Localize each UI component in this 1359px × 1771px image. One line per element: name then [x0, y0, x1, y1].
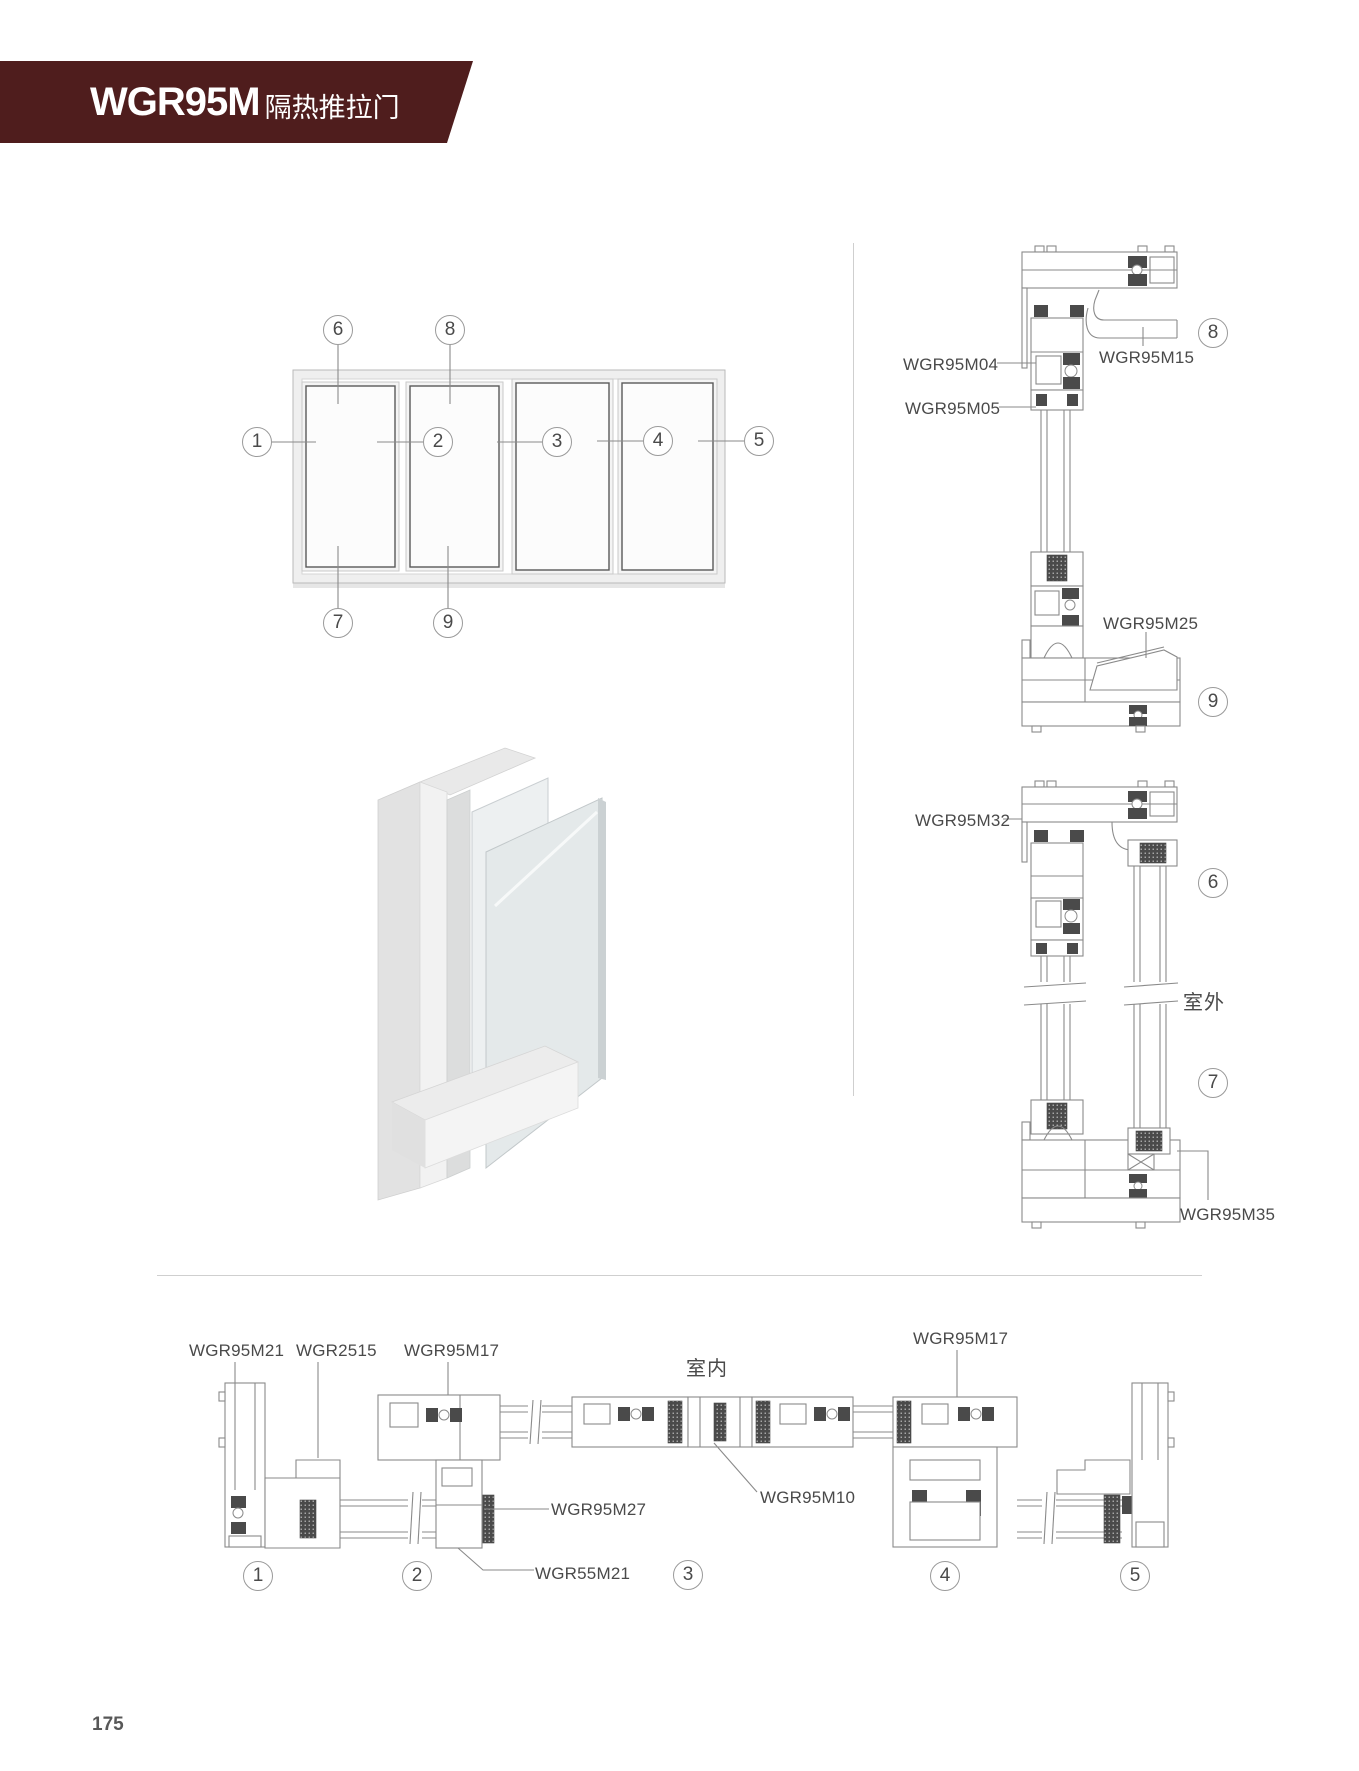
label-wgr2515: WGR2515 — [296, 1341, 377, 1361]
callout-bottom-2: 2 — [402, 1561, 432, 1591]
label-wgr95m21: WGR95M21 — [189, 1341, 284, 1361]
callout-6: 6 — [323, 315, 353, 345]
callout-1: 1 — [242, 427, 272, 457]
callout-section-9: 9 — [1198, 687, 1228, 717]
callout-5: 5 — [744, 426, 774, 456]
callout-2: 2 — [423, 427, 453, 457]
callout-bottom-4: 4 — [930, 1561, 960, 1591]
page-number: 175 — [92, 1714, 124, 1736]
callout-9: 9 — [433, 608, 463, 638]
catalog-page: WGR95M 隔热推拉门 — [0, 0, 1359, 1771]
callout-3: 3 — [542, 427, 572, 457]
label-wgr55m21: WGR55M21 — [535, 1564, 630, 1584]
callout-7: 7 — [323, 608, 353, 638]
callout-4: 4 — [643, 426, 673, 456]
callout-bottom-5: 5 — [1120, 1561, 1150, 1591]
callout-bottom-3: 3 — [673, 1560, 703, 1590]
label-wgr95m15: WGR95M15 — [1099, 348, 1194, 368]
horizontal-section — [219, 1350, 1174, 1570]
profile-3d-render — [378, 748, 606, 1200]
label-wgr95m32: WGR95M32 — [915, 811, 1010, 831]
callout-section-7: 7 — [1198, 1068, 1228, 1098]
vertical-section-bottom — [1003, 781, 1208, 1228]
vertical-section-top — [997, 246, 1180, 732]
label-wgr95m05: WGR95M05 — [905, 399, 1000, 419]
label-indoor: 室内 — [686, 1352, 728, 1381]
label-wgr95m17-left: WGR95M17 — [404, 1341, 499, 1361]
horizontal-section-leader-lines — [235, 1350, 957, 1570]
callout-section-6: 6 — [1198, 868, 1228, 898]
label-wgr95m25: WGR95M25 — [1103, 614, 1198, 634]
technical-linework — [0, 0, 1359, 1771]
label-wgr95m17-right: WGR95M17 — [913, 1329, 1008, 1349]
label-wgr95m35: WGR95M35 — [1180, 1205, 1275, 1225]
label-wgr95m04: WGR95M04 — [903, 355, 998, 375]
callout-section-8: 8 — [1198, 318, 1228, 348]
callout-8: 8 — [435, 315, 465, 345]
elevation-drawing — [272, 345, 744, 608]
callout-bottom-1: 1 — [243, 1561, 273, 1591]
label-wgr95m10: WGR95M10 — [760, 1488, 855, 1508]
label-outdoor: 室外 — [1183, 986, 1225, 1015]
label-wgr95m27: WGR95M27 — [551, 1500, 646, 1520]
